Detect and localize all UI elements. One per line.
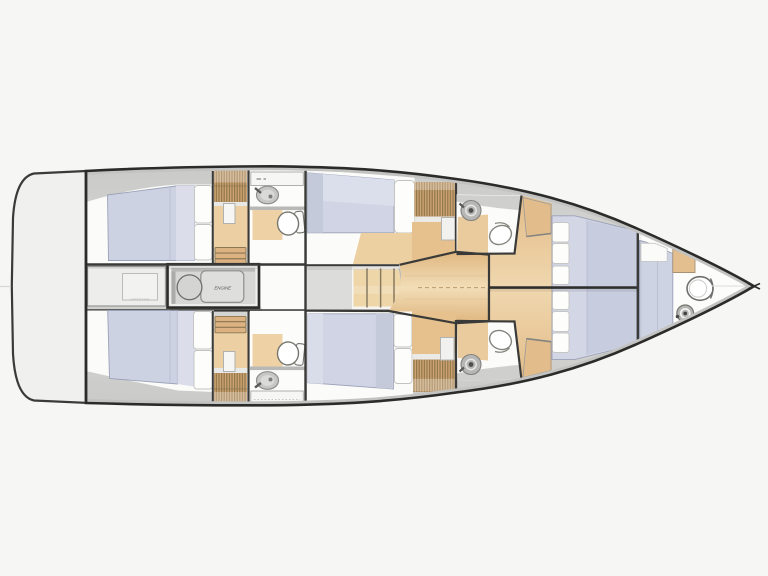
svg-text:WATER TANK: WATER TANK xyxy=(130,298,149,302)
svg-text:ENGINE: ENGINE xyxy=(214,285,231,290)
